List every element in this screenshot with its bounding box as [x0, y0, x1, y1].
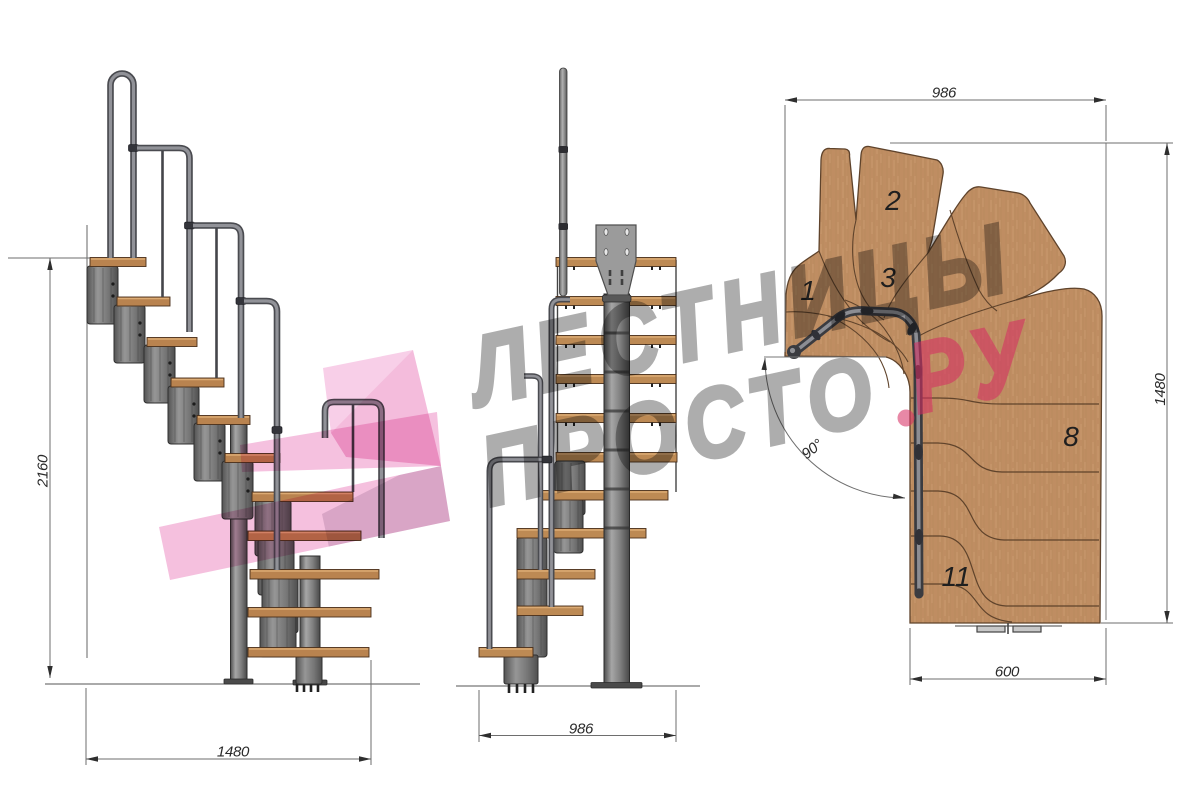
svg-text:1480: 1480 — [1152, 372, 1169, 405]
svg-text:986: 986 — [569, 721, 594, 738]
svg-text:8: 8 — [1063, 421, 1079, 452]
svg-text:11: 11 — [941, 561, 970, 592]
svg-text:986: 986 — [932, 85, 957, 102]
svg-text:600: 600 — [995, 664, 1020, 681]
svg-text:1480: 1480 — [217, 744, 250, 761]
svg-text:2: 2 — [884, 185, 901, 216]
svg-text:2160: 2160 — [35, 454, 52, 488]
